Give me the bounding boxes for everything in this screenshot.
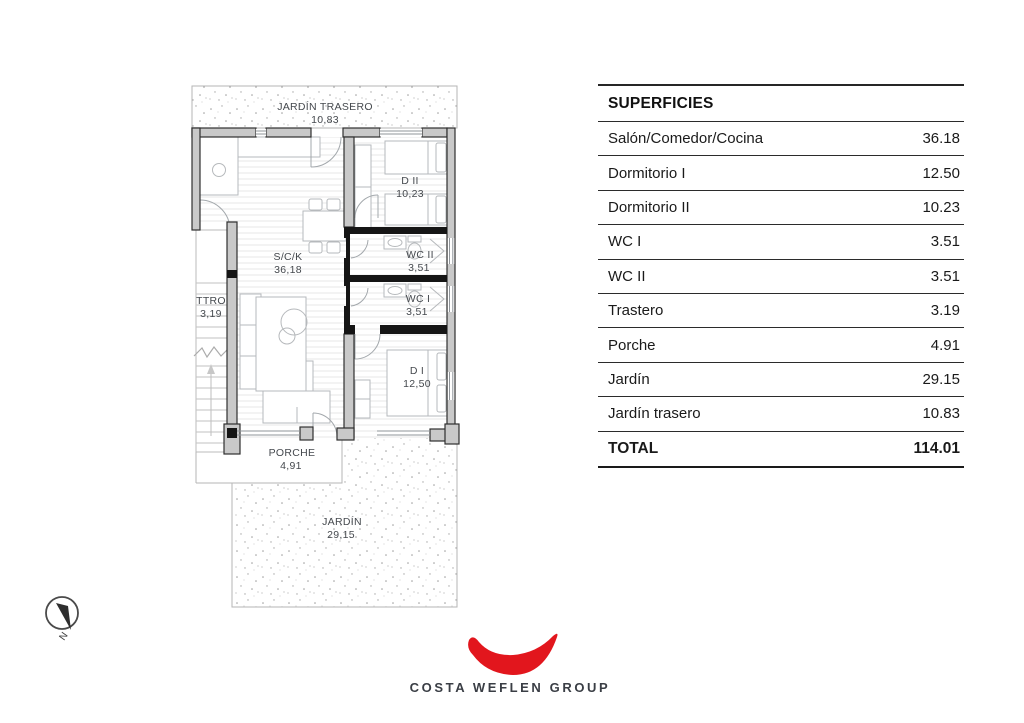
staircase [194,222,228,452]
svg-text:10,83: 10,83 [311,114,339,126]
svg-text:4,91: 4,91 [280,460,302,472]
svg-text:10,23: 10,23 [396,188,424,200]
brand-name: COSTA WEFLEN GROUP [400,680,620,695]
svg-text:36,18: 36,18 [274,264,302,276]
svg-text:3,19: 3,19 [200,308,222,320]
surface-table: SUPERFICIES Salón/Comedor/Cocina 36.18 D… [598,84,964,468]
room-label-ttro: TTRO 3,19 [196,295,226,320]
svg-text:JARDÍN: JARDÍN [322,515,362,528]
svg-text:N: N [57,630,70,642]
total-value: 114.01 [913,440,960,458]
row-value: 4.91 [931,337,960,354]
table-row: Dormitorio I 12.50 [598,156,964,190]
row-value: 36.18 [922,130,960,147]
row-label: Trastero [608,302,663,319]
row-value: 3.51 [931,268,960,285]
svg-text:3,51: 3,51 [406,306,428,318]
surface-table-title: SUPERFICIES [598,86,964,122]
row-label: WC II [608,268,646,285]
tv-bench [263,391,330,423]
row-value: 10.23 [922,199,960,216]
table-row: WC II 3.51 [598,260,964,294]
svg-text:TTRO: TTRO [196,295,226,307]
table-row: Jardín trasero 10.83 [598,397,964,431]
room-label-wc1: WC I 3,51 [406,293,431,318]
row-value: 10.83 [922,405,960,422]
table-total-row: TOTAL 114.01 [598,432,964,468]
svg-text:S/C/K: S/C/K [274,251,303,263]
row-value: 3.19 [931,302,960,319]
room-label-porche: PORCHE 4,91 [269,447,316,472]
table-row: Dormitorio II 10.23 [598,191,964,225]
table-row: Jardín 29.15 [598,363,964,397]
row-value: 3.51 [931,233,960,250]
brand-smile-icon [468,634,557,675]
svg-text:WC II: WC II [406,249,434,261]
row-label: Salón/Comedor/Cocina [608,130,763,147]
table-row: Trastero 3.19 [598,294,964,328]
row-label: WC I [608,233,641,250]
svg-text:PORCHE: PORCHE [269,447,316,459]
svg-text:3,51: 3,51 [408,262,430,274]
room-label-sck: S/C/K 36,18 [274,251,303,276]
svg-text:12,50: 12,50 [403,378,431,390]
svg-text:D II: D II [401,175,419,187]
table-row: Salón/Comedor/Cocina 36.18 [598,122,964,156]
row-value: 29.15 [922,371,960,388]
room-label-wc2: WC II 3,51 [406,249,434,274]
svg-text:WC I: WC I [406,293,431,305]
row-label: Dormitorio II [608,199,690,216]
total-label: TOTAL [608,440,658,458]
table-row: WC I 3.51 [598,225,964,259]
north-compass-icon: N [46,597,78,643]
kitchen-island [256,297,307,391]
svg-text:JARDÍN TRASERO: JARDÍN TRASERO [277,100,373,113]
row-label: Dormitorio I [608,165,686,182]
row-label: Porche [608,337,656,354]
row-label: Jardín trasero [608,405,701,422]
svg-text:D I: D I [410,365,424,377]
row-label: Jardín [608,371,650,388]
row-value: 12.50 [922,165,960,182]
table-row: Porche 4.91 [598,328,964,362]
svg-text:29,15: 29,15 [327,529,355,541]
floor-plan-page: JARDÍN TRASERO 10,83 D II 10,23 S/C/K 36… [0,0,1024,723]
